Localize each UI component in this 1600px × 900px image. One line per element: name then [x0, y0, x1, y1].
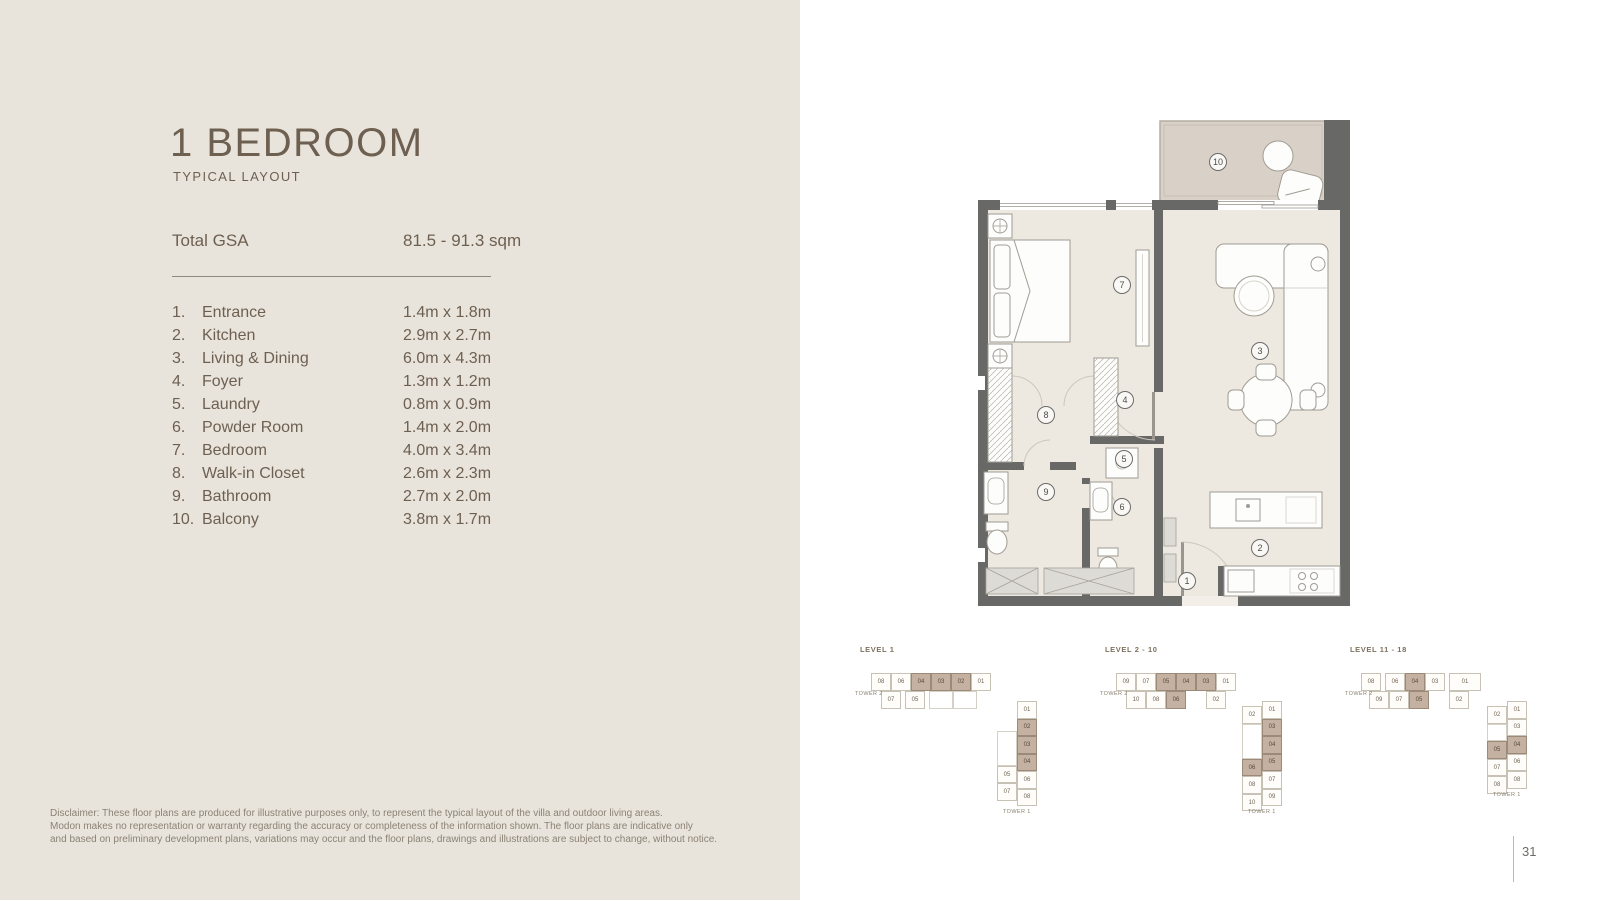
room-row: 4.Foyer1.3m x 1.2m [172, 370, 532, 393]
room-dims: 2.6m x 2.3m [403, 465, 532, 483]
tower-1-label: TOWER 1 [1248, 809, 1276, 815]
sofa [1284, 244, 1328, 410]
room-dims: 6.0m x 4.3m [403, 350, 532, 368]
unit-cell-empty [929, 691, 953, 709]
tower-1-label: TOWER 1 [1003, 809, 1031, 815]
room-row: 3.Living & Dining6.0m x 4.3m [172, 347, 532, 370]
entrance-opening [1182, 596, 1238, 606]
room-name: Kitchen [202, 327, 403, 345]
unit-cell: 10 [1126, 691, 1146, 709]
unit-cell: 04 [1017, 754, 1037, 772]
divider-rule [172, 276, 491, 277]
plan-marker: 10 [1210, 154, 1227, 171]
unit-cell: 06 [1242, 759, 1262, 777]
room-number: 10. [172, 511, 202, 529]
unit-cell: 02 [951, 673, 971, 691]
unit-cell: 06 [1017, 771, 1037, 789]
room-name: Bedroom [202, 442, 403, 460]
svg-text:2: 2 [1257, 543, 1262, 553]
room-number: 2. [172, 327, 202, 345]
plan-marker: 8 [1038, 407, 1055, 424]
unit-cell: 02 [1242, 706, 1262, 724]
room-row: 9.Bathroom2.7m x 2.0m [172, 485, 532, 508]
coffee-table [1234, 276, 1274, 316]
keyplan-level-1: LEVEL 10806040302010705TOWER 20102030406… [855, 645, 1105, 845]
balcony-area [1160, 120, 1350, 211]
unit-cell: 06 [1166, 691, 1186, 709]
room-row: 2.Kitchen2.9m x 2.7m [172, 324, 532, 347]
room-row: 6.Powder Room1.4m x 2.0m [172, 416, 532, 439]
plan-marker: 4 [1117, 392, 1134, 409]
room-number: 6. [172, 419, 202, 437]
svg-text:3: 3 [1257, 346, 1262, 356]
unit-cell: 03 [1017, 736, 1037, 754]
room-dims: 1.3m x 1.2m [403, 373, 532, 391]
brochure-page: 1 BEDROOM TYPICAL LAYOUT Total GSA 81.5 … [0, 0, 1600, 900]
room-dims: 2.7m x 2.0m [403, 488, 532, 506]
unit-cell: 08 [1146, 691, 1166, 709]
plan-marker: 3 [1252, 343, 1269, 360]
unit-cell: 08 [1017, 789, 1037, 807]
room-dims: 4.0m x 3.4m [403, 442, 532, 460]
plan-marker: 5 [1116, 451, 1133, 468]
room-number: 3. [172, 350, 202, 368]
unit-cell: 01 [1507, 701, 1527, 719]
room-dims: 3.8m x 1.7m [403, 511, 532, 529]
unit-cell: 08 [1361, 673, 1381, 691]
page-subtitle: TYPICAL LAYOUT [173, 169, 301, 184]
room-name: Powder Room [202, 419, 403, 437]
unit-cell-empty [953, 691, 977, 709]
unit-cell: 01 [1216, 673, 1236, 691]
plan-marker: 1 [1179, 573, 1196, 590]
unit-cell: 03 [1507, 719, 1527, 737]
page-title: 1 BEDROOM [170, 121, 424, 166]
bathroom-fixtures [984, 472, 1008, 554]
unit-cell: 07 [1262, 771, 1282, 789]
room-dims: 0.8m x 0.9m [403, 396, 532, 414]
total-gsa-label: Total GSA [172, 231, 403, 251]
keyplan-level-11-18: LEVEL 11 - 18080604030109070502TOWER 201… [1345, 645, 1595, 845]
unit-cell: 01 [1017, 701, 1037, 719]
tower-2-label: TOWER 2 [855, 691, 883, 697]
room-row: 10.Balcony3.8m x 1.7m [172, 508, 532, 531]
dining-chair [1300, 390, 1316, 410]
total-gsa-value: 81.5 - 91.3 sqm [403, 231, 521, 251]
svg-text:4: 4 [1122, 395, 1127, 405]
room-dims: 1.4m x 1.8m [403, 304, 532, 322]
room-number: 4. [172, 373, 202, 391]
unit-cell: 06 [891, 673, 911, 691]
wall-notch [978, 376, 985, 390]
room-number: 1. [172, 304, 202, 322]
unit-cell: 03 [1262, 719, 1282, 737]
unit-cell-empty [1487, 724, 1507, 742]
room-number: 9. [172, 488, 202, 506]
unit-cell-empty [997, 731, 1017, 766]
toilet-tank [1098, 548, 1118, 556]
unit-cell: 02 [1449, 691, 1469, 709]
dining-chair [1256, 420, 1276, 436]
plan-marker: 7 [1114, 277, 1131, 294]
shaft-box [1164, 554, 1176, 582]
unit-cell: 07 [997, 783, 1017, 801]
page-number: 31 [1522, 844, 1536, 859]
keyplan-label: LEVEL 11 - 18 [1350, 645, 1407, 654]
balcony-table [1263, 141, 1293, 171]
unit-cell: 04 [1262, 736, 1282, 754]
unit-cell: 04 [1176, 673, 1196, 691]
room-name: Laundry [202, 396, 403, 414]
dining-table [1240, 374, 1292, 426]
unit-cell: 09 [1262, 789, 1282, 807]
unit-cell: 07 [1487, 759, 1507, 777]
unit-cell: 05 [1156, 673, 1176, 691]
room-name: Foyer [202, 373, 403, 391]
room-row: 7.Bedroom4.0m x 3.4m [172, 439, 532, 462]
unit-cell: 05 [1262, 754, 1282, 772]
keyplan-label: LEVEL 1 [860, 645, 895, 654]
svg-text:6: 6 [1119, 502, 1124, 512]
tower-1-label: TOWER 1 [1493, 792, 1521, 798]
toilet [987, 530, 1007, 554]
shaft-box [1164, 518, 1176, 546]
unit-cell: 04 [1507, 736, 1527, 754]
unit-cell: 02 [1017, 719, 1037, 737]
unit-cell: 02 [1487, 706, 1507, 724]
unit-cell: 03 [1196, 673, 1216, 691]
room-row: 5.Laundry0.8m x 0.9m [172, 393, 532, 416]
room-name: Living & Dining [202, 350, 403, 368]
room-row: 1.Entrance1.4m x 1.8m [172, 301, 532, 324]
unit-cell: 05 [905, 691, 925, 709]
room-name: Entrance [202, 304, 403, 322]
floor-plan: 12345678910 [978, 118, 1350, 606]
dining-chair [1228, 390, 1244, 410]
plan-marker: 6 [1114, 499, 1131, 516]
unit-cell: 01 [971, 673, 991, 691]
room-list: 1.Entrance1.4m x 1.8m2.Kitchen2.9m x 2.7… [172, 301, 532, 531]
unit-cell: 07 [1136, 673, 1156, 691]
service-shafts [986, 568, 1134, 594]
room-name: Walk-in Closet [202, 465, 403, 483]
left-panel: 1 BEDROOM TYPICAL LAYOUT Total GSA 81.5 … [0, 0, 800, 900]
room-number: 8. [172, 465, 202, 483]
room-name: Balcony [202, 511, 403, 529]
keyplan-label: LEVEL 2 - 10 [1105, 645, 1158, 654]
unit-cell: 08 [1507, 771, 1527, 789]
svg-text:1: 1 [1184, 576, 1189, 586]
wall-notch [978, 548, 985, 562]
unit-cell: 05 [997, 766, 1017, 784]
room-row: 8.Walk-in Closet2.6m x 2.3m [172, 462, 532, 485]
svg-text:8: 8 [1043, 410, 1048, 420]
svg-text:7: 7 [1119, 280, 1124, 290]
unit-cell: 01 [1262, 701, 1282, 719]
unit-cell: 05 [1487, 741, 1507, 759]
room-dims: 2.9m x 2.7m [403, 327, 532, 345]
unit-cell: 09 [1116, 673, 1136, 691]
unit-cell: 08 [871, 673, 891, 691]
svg-text:9: 9 [1043, 487, 1048, 497]
unit-cell: 07 [881, 691, 901, 709]
tower-2-label: TOWER 2 [1100, 691, 1128, 697]
unit-cell: 06 [1385, 673, 1405, 691]
unit-cell: 04 [911, 673, 931, 691]
tower-2-label: TOWER 2 [1345, 691, 1373, 697]
unit-cell: 03 [1425, 673, 1445, 691]
total-gsa-row: Total GSA 81.5 - 91.3 sqm [172, 231, 572, 251]
disclaimer-text: Disclaimer: These floor plans are produc… [50, 807, 720, 847]
room-dims: 1.4m x 2.0m [403, 419, 532, 437]
dining-chair [1256, 364, 1276, 380]
unit-cell: 03 [931, 673, 951, 691]
unit-cell: 08 [1242, 776, 1262, 794]
plan-marker: 2 [1252, 540, 1269, 557]
unit-cell-empty [1242, 724, 1262, 759]
unit-cell: 07 [1389, 691, 1409, 709]
room-number: 5. [172, 396, 202, 414]
unit-cell: 05 [1409, 691, 1429, 709]
unit-cell: 02 [1206, 691, 1226, 709]
room-number: 7. [172, 442, 202, 460]
page-number-rule [1513, 836, 1514, 882]
plan-marker: 9 [1038, 484, 1055, 501]
svg-text:10: 10 [1213, 157, 1223, 167]
keyplan-level-2-10: LEVEL 2 - 1009070504030110080602TOWER 20… [1100, 645, 1350, 845]
svg-text:5: 5 [1121, 454, 1126, 464]
unit-cell: 06 [1507, 754, 1527, 772]
room-name: Bathroom [202, 488, 403, 506]
unit-cell: 01 [1449, 673, 1481, 691]
unit-cell: 04 [1405, 673, 1425, 691]
